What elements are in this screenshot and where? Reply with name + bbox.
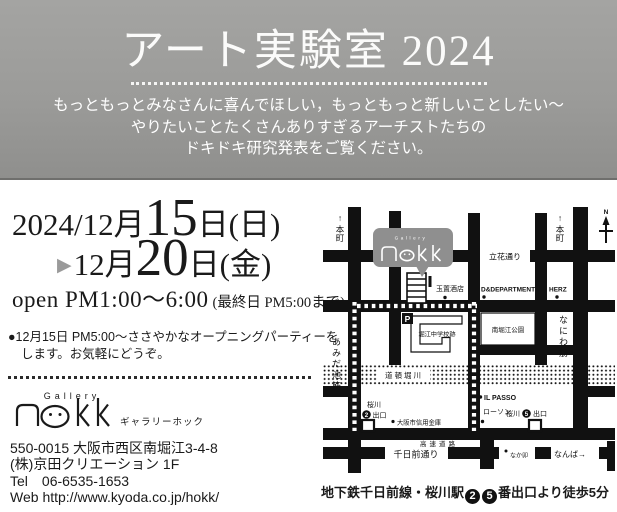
herz-label: HERZ [549,287,567,294]
exit-label: 出口 [533,409,547,418]
tamaki-sake-label: 玉置酒店 [436,284,464,293]
tachibana-street-label: 立花通り [489,252,521,262]
shinkin-dot [391,420,394,423]
herz-dot [555,295,558,298]
open-hours-main: open PM1:00～6:00 [12,280,208,314]
date-end-weekday: 日(金) [189,239,272,284]
hokk-wordmark [17,398,109,427]
amidaike-street-label: あみだ池筋 [331,337,341,392]
hommachi-right: ↑ 本町 [555,213,565,242]
street-naniwa [573,207,588,440]
date-end-prefix: 12月 [74,239,136,284]
flyer-page: アート実験室 2024 もっともっとみなさんに喜んでほしい，もっともっと新しいこ… [0,0,617,512]
sakuragawa-exit2-group: 桜川 2 出口 [362,400,386,420]
logo-kana-text: ギャラリーホック [120,417,204,428]
letter-h [17,405,38,426]
exit2-number: 2 [365,412,369,419]
exit2-box [362,420,374,431]
il-passo-label: IL PASSO [484,395,517,402]
park-label: 南堀江公園 [492,325,525,334]
exit5-box [529,420,541,431]
letter-o-face [42,406,69,427]
school-site-block: 堀江中学校跡 [411,316,462,352]
compass-arrowhead [603,216,610,225]
lawson-dot [481,420,484,423]
street-sennichimae-seg1 [323,447,385,459]
streets [323,207,615,473]
letter-k1-arms [80,405,89,427]
riverbank-street-right [588,386,615,397]
tachibana-label-gap: 立花通り [480,250,530,262]
page-title: アート実験室 2024 [0,16,617,78]
park-block: 南堀江公園 [481,313,535,345]
arrow-right-icon: ▶ [57,254,72,277]
date-end-day: 20 [136,228,189,288]
left-eye-dot [49,413,52,416]
shinkin-bank-label: 大阪市信用金庫 [397,418,442,427]
up-arrow-icon: ↑ [338,213,342,223]
naniwa-street-label: なにわ筋 [558,315,568,359]
gallery-building [407,273,432,303]
street-stub-center [480,440,494,469]
web-label: Web [10,489,39,505]
subtitle-line-3: ドキドキ研究発表をご覧ください。 [0,138,617,160]
parking-box: P [402,313,413,324]
date-end: ▶12月20日(金) [57,228,271,288]
hommachi-label: 本町 [335,224,345,242]
sakuragawa-label: 桜川 [506,409,520,418]
access-caption: 地下鉄千日前線・桜川駅25番出口より徒歩5分 [321,482,617,504]
street-sennichimae-seg3 [535,447,551,459]
ilpasso-dot [479,395,482,398]
postal-address: 550-0015 大阪市西区南堀江3-4-8 [10,440,219,456]
bubble-gallery-text: Gallery [395,236,428,241]
nakau-dot [505,450,508,453]
caption-suffix: 番出口より徒歩5分 [498,485,609,500]
tel-label: Tel [10,473,28,489]
party-note-line-2: します。お気軽にどうぞ。 [21,346,338,363]
dd-dot [482,295,485,298]
highway-label: 高速道路 [420,439,458,448]
dotted-separator [8,376,311,379]
sakuragawa-exit5-group: 桜川 5 出口 [506,409,547,418]
web-url: http://www.kyoda.co.jp/hokk/ [42,489,219,505]
address-block: 550-0015 大阪市西区南堀江3-4-8 (株)京田クリエーション 1F T… [10,440,219,506]
compass: N [599,209,613,243]
sakuragawa-label: 桜川 [367,400,381,409]
building-entrance-tick [429,276,432,287]
street-park-south [468,345,588,355]
nakau-label: なか卯 [510,452,528,460]
up-arrow-icon: ↑ [558,213,562,223]
gallery-hokk-logo: Gallery ギャラリーホック [8,388,220,438]
compass-n: N [604,209,609,216]
access-map: 道頓堀川 立花通り [323,201,615,473]
caption-exit2-badge: 2 [465,489,480,504]
subtitle-line-2: やりたいことたくさんありすぎるアーチストたちの [0,117,617,139]
tel-number: 06-6535-1653 [42,473,129,489]
tel-line: Tel06-6535-1653 [10,473,219,489]
building-line: (株)京田クリエーション 1F [10,456,219,472]
gallery-hokk-bubble: Gallery [373,228,453,277]
sennichimae-street-label: 千日前通り [393,449,438,460]
face-eyes [49,413,62,416]
school-site-label: 堀江中学校跡 [418,331,456,339]
street-stub-right [607,441,615,471]
party-note-line-1: ●12月15日 PM5:00～ささやかなオープニングパーティーを [8,329,338,346]
exit-label: 出口 [373,411,387,420]
parking-label: P [405,314,411,324]
opening-party-note: ●12月15日 PM5:00～ささやかなオープニングパーティーを します。お気軽… [8,329,338,363]
river-label: 道頓堀川 [385,370,423,380]
caption-exit5-badge: 5 [482,489,497,504]
letter-k2-arms [100,405,109,427]
title-dotted-underline [131,82,487,85]
street-tachibana [323,250,615,262]
namba-label: なんば→ [554,450,586,459]
dd-store-label: D&DEPARTMENT [481,287,535,294]
subtitle-line-1: もっともっとみなさんに喜んでほしい，もっともっと新しいことしたい～ [0,95,617,117]
logo-gallery-text: Gallery [44,391,101,401]
tamaki-dot [443,296,446,299]
right-eye-dot [59,413,62,416]
web-line: Web http://www.kyoda.co.jp/hokk/ [10,489,219,505]
exit5-number: 5 [525,411,529,418]
open-hours: open PM1:00～6:00 (最終日 PM5:00まで) [12,280,345,314]
header-banner: アート実験室 2024 もっともっとみなさんに喜んでほしい，もっともっと新しいこ… [0,0,617,180]
hommachi-label: 本町 [555,224,565,242]
banner-subtitle: もっともっとみなさんに喜んでほしい，もっともっと新しいことしたい～ やりたいこと… [0,95,617,160]
caption-prefix: 地下鉄千日前線・桜川駅 [321,485,464,500]
street-v4 [535,213,547,365]
hommachi-left: ↑ 本町 [335,213,345,242]
